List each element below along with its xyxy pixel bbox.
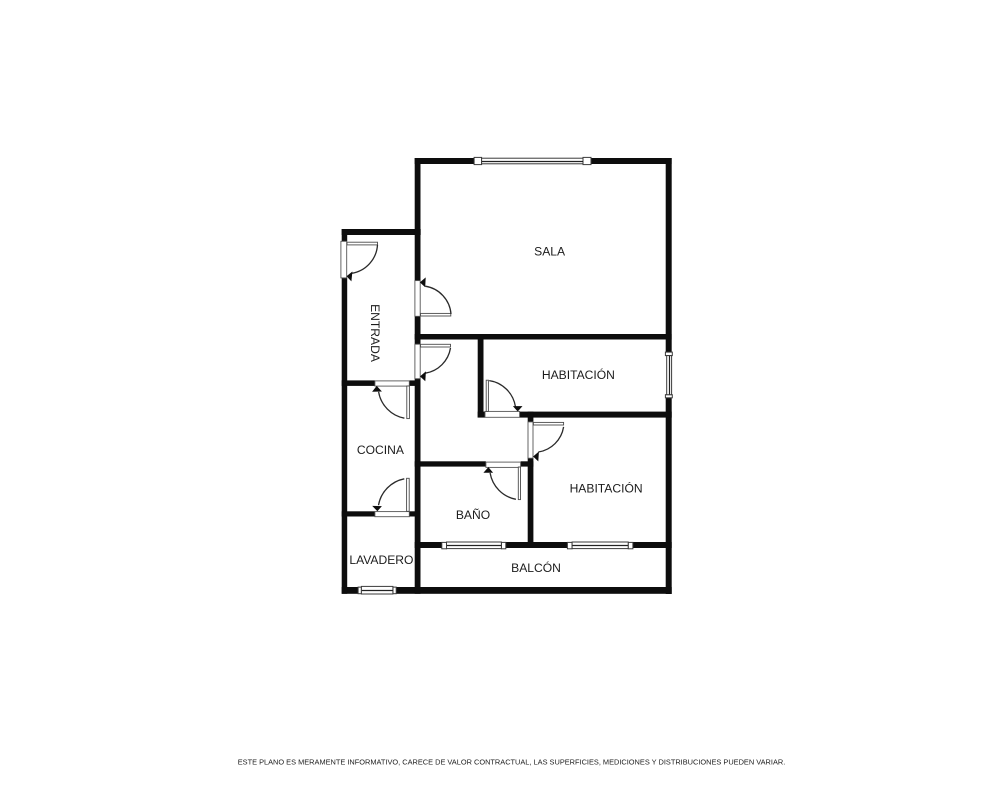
svg-text:SALA: SALA	[534, 245, 566, 259]
svg-text:ENTRADA: ENTRADA	[368, 304, 382, 363]
svg-text:LAVADERO: LAVADERO	[349, 553, 413, 567]
svg-text:HABITACIÓN: HABITACIÓN	[542, 367, 615, 382]
svg-text:COCINA: COCINA	[357, 443, 405, 457]
svg-text:BAÑO: BAÑO	[456, 508, 490, 522]
svg-text:ESTE PLANO ES MERAMENTE INFORM: ESTE PLANO ES MERAMENTE INFORMATIVO, CAR…	[238, 758, 786, 767]
svg-text:BALCÓN: BALCÓN	[511, 560, 561, 575]
svg-text:HABITACIÓN: HABITACIÓN	[570, 481, 643, 496]
